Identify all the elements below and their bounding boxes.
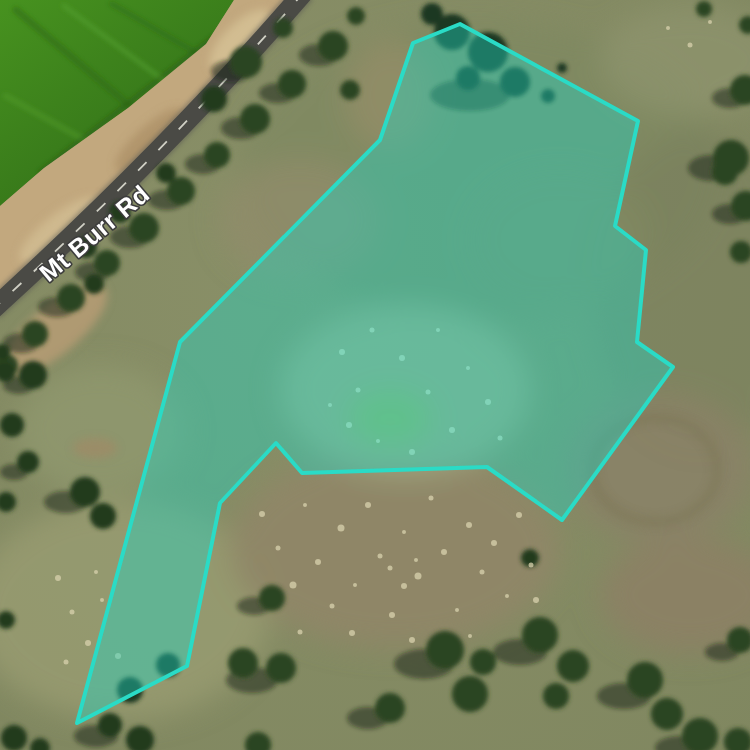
satellite-map: Mt Burr Rd <box>0 0 750 750</box>
map-viewport[interactable]: Mt Burr Rd <box>0 0 750 750</box>
dirt-patch <box>73 438 117 458</box>
